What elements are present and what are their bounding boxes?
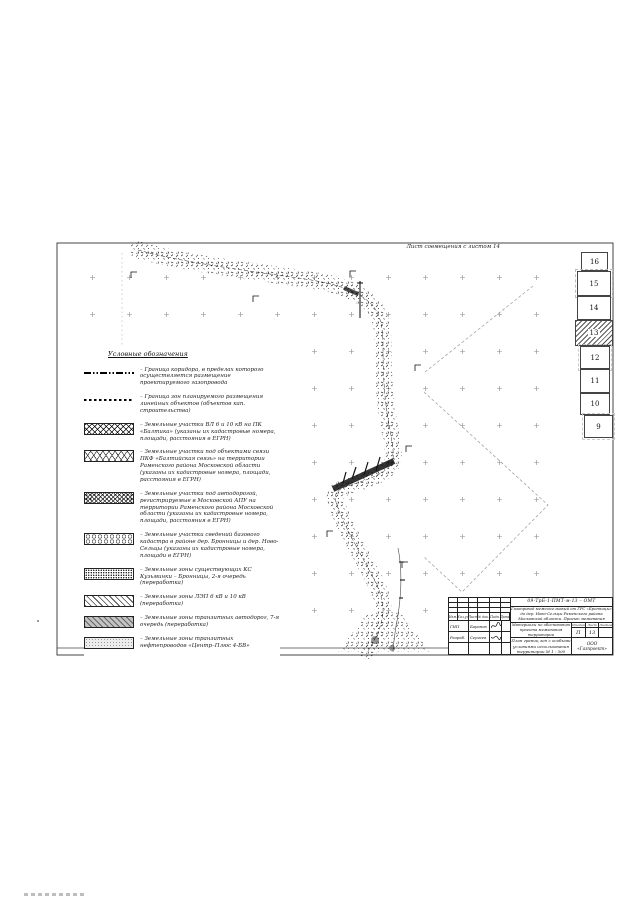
scan-artifact [24,893,86,896]
sheet-box-12: 12 [580,346,610,369]
signature-scribble [490,621,502,631]
dashed-line-symbol [84,399,134,401]
role-label: Разраб. [449,632,469,642]
sheet-index-strip: 16 15 14 13 12 11 10 9 [573,250,617,440]
sheet-box-10: 10 [580,393,610,415]
drawing-title: План границ зон с особыми условиями испо… [511,638,572,654]
col-data: Дата [501,613,510,620]
company-name: ООО «Газпроект» [572,638,612,654]
legend-item-label: – Граница зон планируемого размещения ли… [140,394,280,415]
legend-item-label: – Граница коридора, в пределах которого … [140,367,280,388]
legend-item-label: – Земельные участки ВЛ 6 и 10 кВ на ПК «… [140,422,280,443]
role-label: ГИП [449,621,469,631]
sheet-box-14: 14 [577,296,611,320]
col-koluch: Кол.уч [458,613,469,620]
sheet-box-11: 11 [580,369,610,393]
col-izm: Изм. [449,613,458,620]
legend-item: – Земельные зоны транзитных нефтепроводо… [84,636,280,650]
sheet-header: Лист [586,623,600,627]
dense-crosshatch-swatch [84,492,134,504]
stage-table: Стадия Лист Листов П 13 [572,623,612,638]
legend-item-label: – Земельные зоны ЛЭП 6 кВ и 10 кВ (перер… [140,594,280,608]
title-block: Изм. Кол.уч Лист № док. Подп. Дата ГИП Б… [448,597,613,655]
legend: Условные обозначения – Граница коридора,… [84,349,280,659]
title-block-main: 09-ТрБ-1-ПМТ-м-13 – ОМТ Газопровод межпо… [511,598,612,654]
scan-artifact-dot [37,620,39,622]
legend-item: – Земельные зоны ЛЭП 6 кВ и 10 кВ (перер… [84,594,280,608]
name-label: Сергеев [469,632,490,642]
name-label: Баранов [469,621,490,631]
signature-row-razrab: Разраб. Сергеев [449,632,510,643]
sheet-box-9: 9 [584,415,613,438]
gray-diagonal-swatch [84,616,134,628]
document-purpose: Материалы по обоснованию проекта межеван… [511,623,572,638]
col-list: Лист [469,613,478,620]
col-ndok: № док. [478,613,490,620]
legend-item: – Граница коридора, в пределах которого … [84,367,280,388]
pebble-swatch [84,533,134,545]
sheet-box-13-current: 13 [575,320,613,346]
legend-item: – Земельные участки под автодорогой, рег… [84,491,280,525]
sheet-box-16: 16 [581,252,608,271]
legend-item-label: – Земельные зоны транзитных автодорог, 7… [140,615,280,629]
legend-item: – Земельные участки под объектами связи … [84,449,280,483]
diagonal-swatch [84,595,134,607]
light-stipple-swatch [84,637,134,649]
legend-title: Условные обозначения [108,351,280,358]
sheets-header: Листов [599,623,612,627]
project-description: Газопровод межпоселковый от ГРС «Бронниц… [511,607,612,623]
legend-item-label: – Земельные участки сведений базового ка… [140,532,280,560]
legend-item: – Земельные зоны транзитных автодорог, 7… [84,615,280,629]
legend-item-label: – Земельные зоны транзитных нефтепроводо… [140,636,280,650]
legend-item: – Граница зон планируемого размещения ли… [84,394,280,415]
title-block-signatures: Изм. Кол.уч Лист № док. Подп. Дата ГИП Б… [449,598,511,654]
legend-item-label: – Земельные зоны существующих КС Кузьмин… [140,567,280,588]
sheets-value [599,628,612,638]
scanned-plan-sheet: Лист совмещения с листом 14 Лист совмеще… [0,0,640,905]
legend-item-label: – Земельные участки под автодорогой, рег… [140,491,280,525]
crosshatch-swatch [84,423,134,435]
stage-value: П [572,628,586,638]
legend-item: – Земельные участки ВЛ 6 и 10 кВ на ПК «… [84,422,280,443]
dot-grid-swatch [84,568,134,580]
lattice-swatch [84,450,134,462]
legend-item: – Земельные зоны существующих КС Кузьмин… [84,567,280,588]
signature-row-gip: ГИП Баранов [449,621,510,632]
sheet-box-15: 15 [577,271,611,296]
sheet-value: 13 [586,628,600,638]
dash-dot-line-symbol [84,372,134,374]
top-sheet-match-label: Лист совмещения с листом 14 [350,245,500,251]
legend-item: – Земельные участки сведений базового ка… [84,532,280,560]
signature-scribble [490,632,502,642]
legend-item-label: – Земельные участки под объектами связи … [140,449,280,483]
col-podp: Подп. [490,613,501,620]
stage-header: Стадия [572,623,586,627]
